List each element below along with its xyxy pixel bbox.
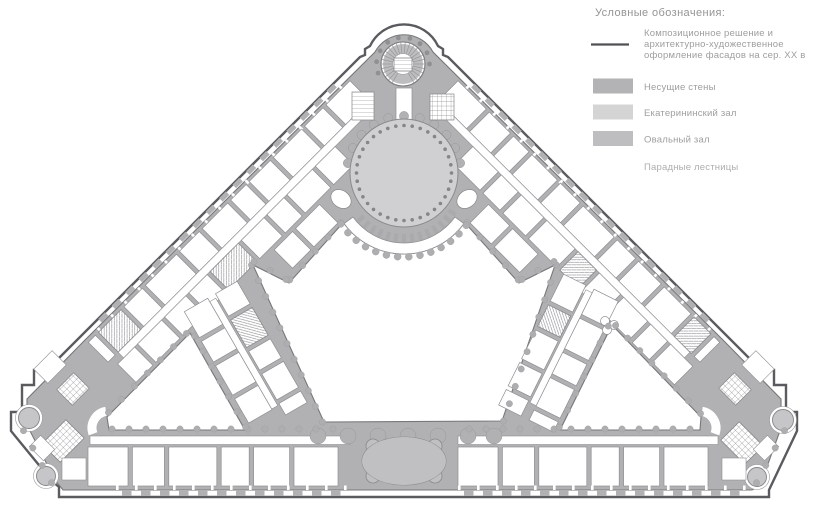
svg-text:Парадные лестницы: Парадные лестницы: [644, 162, 738, 173]
svg-text:Несущие стены: Несущие стены: [644, 82, 716, 93]
svg-text:архитектурно-художественное: архитектурно-художественное: [644, 39, 784, 50]
svg-text:Овальный зал: Овальный зал: [644, 135, 710, 146]
svg-text:Екатерининский зал: Екатерининский зал: [644, 108, 737, 119]
svg-text:Условные обозначения:: Условные обозначения:: [595, 7, 725, 19]
svg-text:Композиционное решение и: Композиционное решение и: [644, 28, 773, 39]
svg-text:оформление фасадов на сер. XX: оформление фасадов на сер. XX в: [644, 50, 805, 61]
